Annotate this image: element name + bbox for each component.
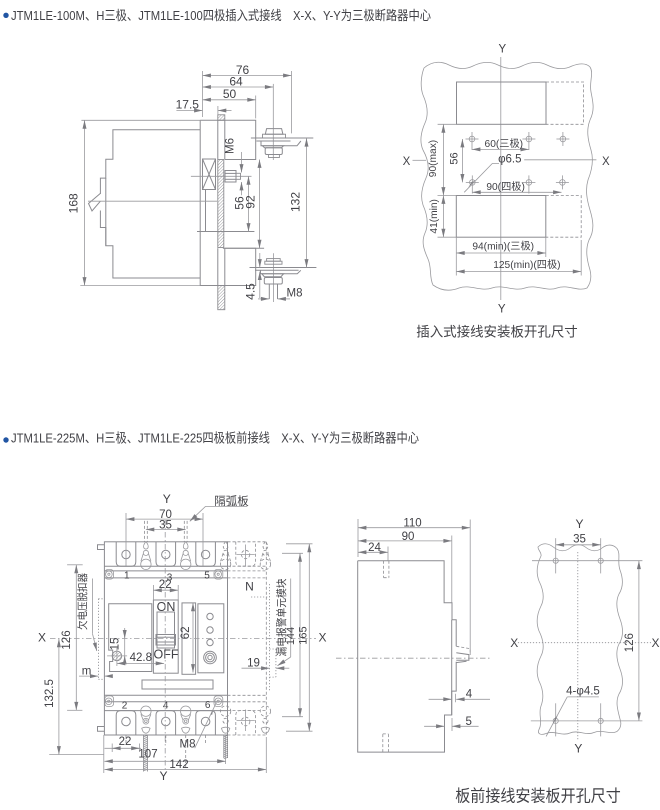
svg-text:插入式接线安装板开孔尺寸: 插入式接线安装板开孔尺寸 [416, 324, 578, 340]
svg-text:22: 22 [159, 579, 172, 591]
svg-text:94(min)(三极): 94(min)(三极) [472, 239, 534, 252]
svg-text:132: 132 [289, 192, 303, 212]
svg-text:5: 5 [465, 716, 471, 728]
svg-text:X: X [651, 636, 659, 650]
svg-text:15: 15 [110, 638, 122, 651]
svg-text:41(min): 41(min) [429, 199, 440, 234]
svg-text:56: 56 [449, 152, 461, 164]
svg-text:90(max): 90(max) [428, 140, 439, 177]
svg-text:4: 4 [466, 689, 473, 701]
svg-text:17.5: 17.5 [176, 98, 200, 112]
svg-text:M8: M8 [180, 739, 196, 751]
svg-text:22: 22 [119, 736, 132, 748]
svg-text:φ6.5: φ6.5 [498, 153, 521, 165]
svg-text:4.5: 4.5 [244, 283, 258, 300]
svg-text:Y: Y [163, 492, 171, 506]
svg-text:欠电压脱扣器: 欠电压脱扣器 [76, 573, 89, 630]
svg-text:50: 50 [223, 87, 237, 101]
svg-text:M8: M8 [287, 288, 303, 300]
svg-text:144: 144 [285, 627, 297, 645]
svg-text:90(四极): 90(四极) [486, 180, 525, 193]
svg-text:4-φ4.5: 4-φ4.5 [566, 686, 600, 698]
svg-text:X: X [403, 156, 411, 168]
svg-text:JTM1LE-225M、H三极、JTM1LE-225四极板前: JTM1LE-225M、H三极、JTM1LE-225四极板前接线 X-X、Y-Y… [11, 430, 419, 446]
svg-text:142: 142 [169, 759, 188, 771]
svg-text:X: X [318, 631, 326, 645]
svg-text:5: 5 [204, 570, 210, 581]
svg-text:JTM1LE-100M、H三极、JTM1LE-100四极插入: JTM1LE-100M、H三极、JTM1LE-100四极插入式接线 X-X、Y-… [11, 7, 431, 23]
svg-text:92: 92 [244, 195, 258, 209]
svg-text:90: 90 [402, 531, 415, 543]
svg-text:Y: Y [575, 517, 583, 531]
svg-text:板前接线安装板开孔尺寸: 板前接线安装板开孔尺寸 [455, 788, 621, 806]
svg-text:X: X [38, 631, 46, 645]
svg-text:OFF: OFF [154, 648, 179, 662]
svg-text:42.8: 42.8 [130, 652, 152, 664]
svg-text:Y: Y [574, 742, 582, 756]
svg-text:M6: M6 [225, 138, 237, 154]
svg-text:4: 4 [163, 701, 169, 712]
svg-text:107: 107 [138, 749, 157, 761]
svg-text:35: 35 [573, 534, 586, 546]
svg-text:132.5: 132.5 [44, 679, 56, 708]
svg-text:168: 168 [67, 193, 81, 213]
svg-text:60(三极): 60(三极) [485, 137, 524, 150]
svg-text:Y: Y [498, 304, 506, 316]
svg-text:165: 165 [297, 626, 309, 644]
svg-text:6: 6 [205, 700, 211, 711]
svg-text:X: X [602, 156, 610, 168]
svg-text:2: 2 [122, 701, 128, 712]
svg-text:N: N [245, 579, 254, 593]
svg-text:1: 1 [124, 570, 130, 581]
svg-text:X: X [510, 636, 518, 650]
svg-text:ON: ON [157, 600, 176, 614]
svg-text:19: 19 [247, 658, 260, 670]
svg-text:110: 110 [403, 518, 421, 530]
svg-text:126: 126 [61, 630, 73, 649]
svg-text:隔弧板: 隔弧板 [214, 494, 249, 508]
svg-text:Y: Y [498, 44, 506, 56]
svg-text:62: 62 [180, 627, 192, 640]
svg-text:35: 35 [159, 520, 172, 532]
svg-text:125(min)(四极): 125(min)(四极) [493, 258, 560, 271]
svg-text:24: 24 [368, 542, 381, 554]
svg-text:Y: Y [159, 769, 167, 783]
svg-text:126: 126 [624, 633, 636, 652]
